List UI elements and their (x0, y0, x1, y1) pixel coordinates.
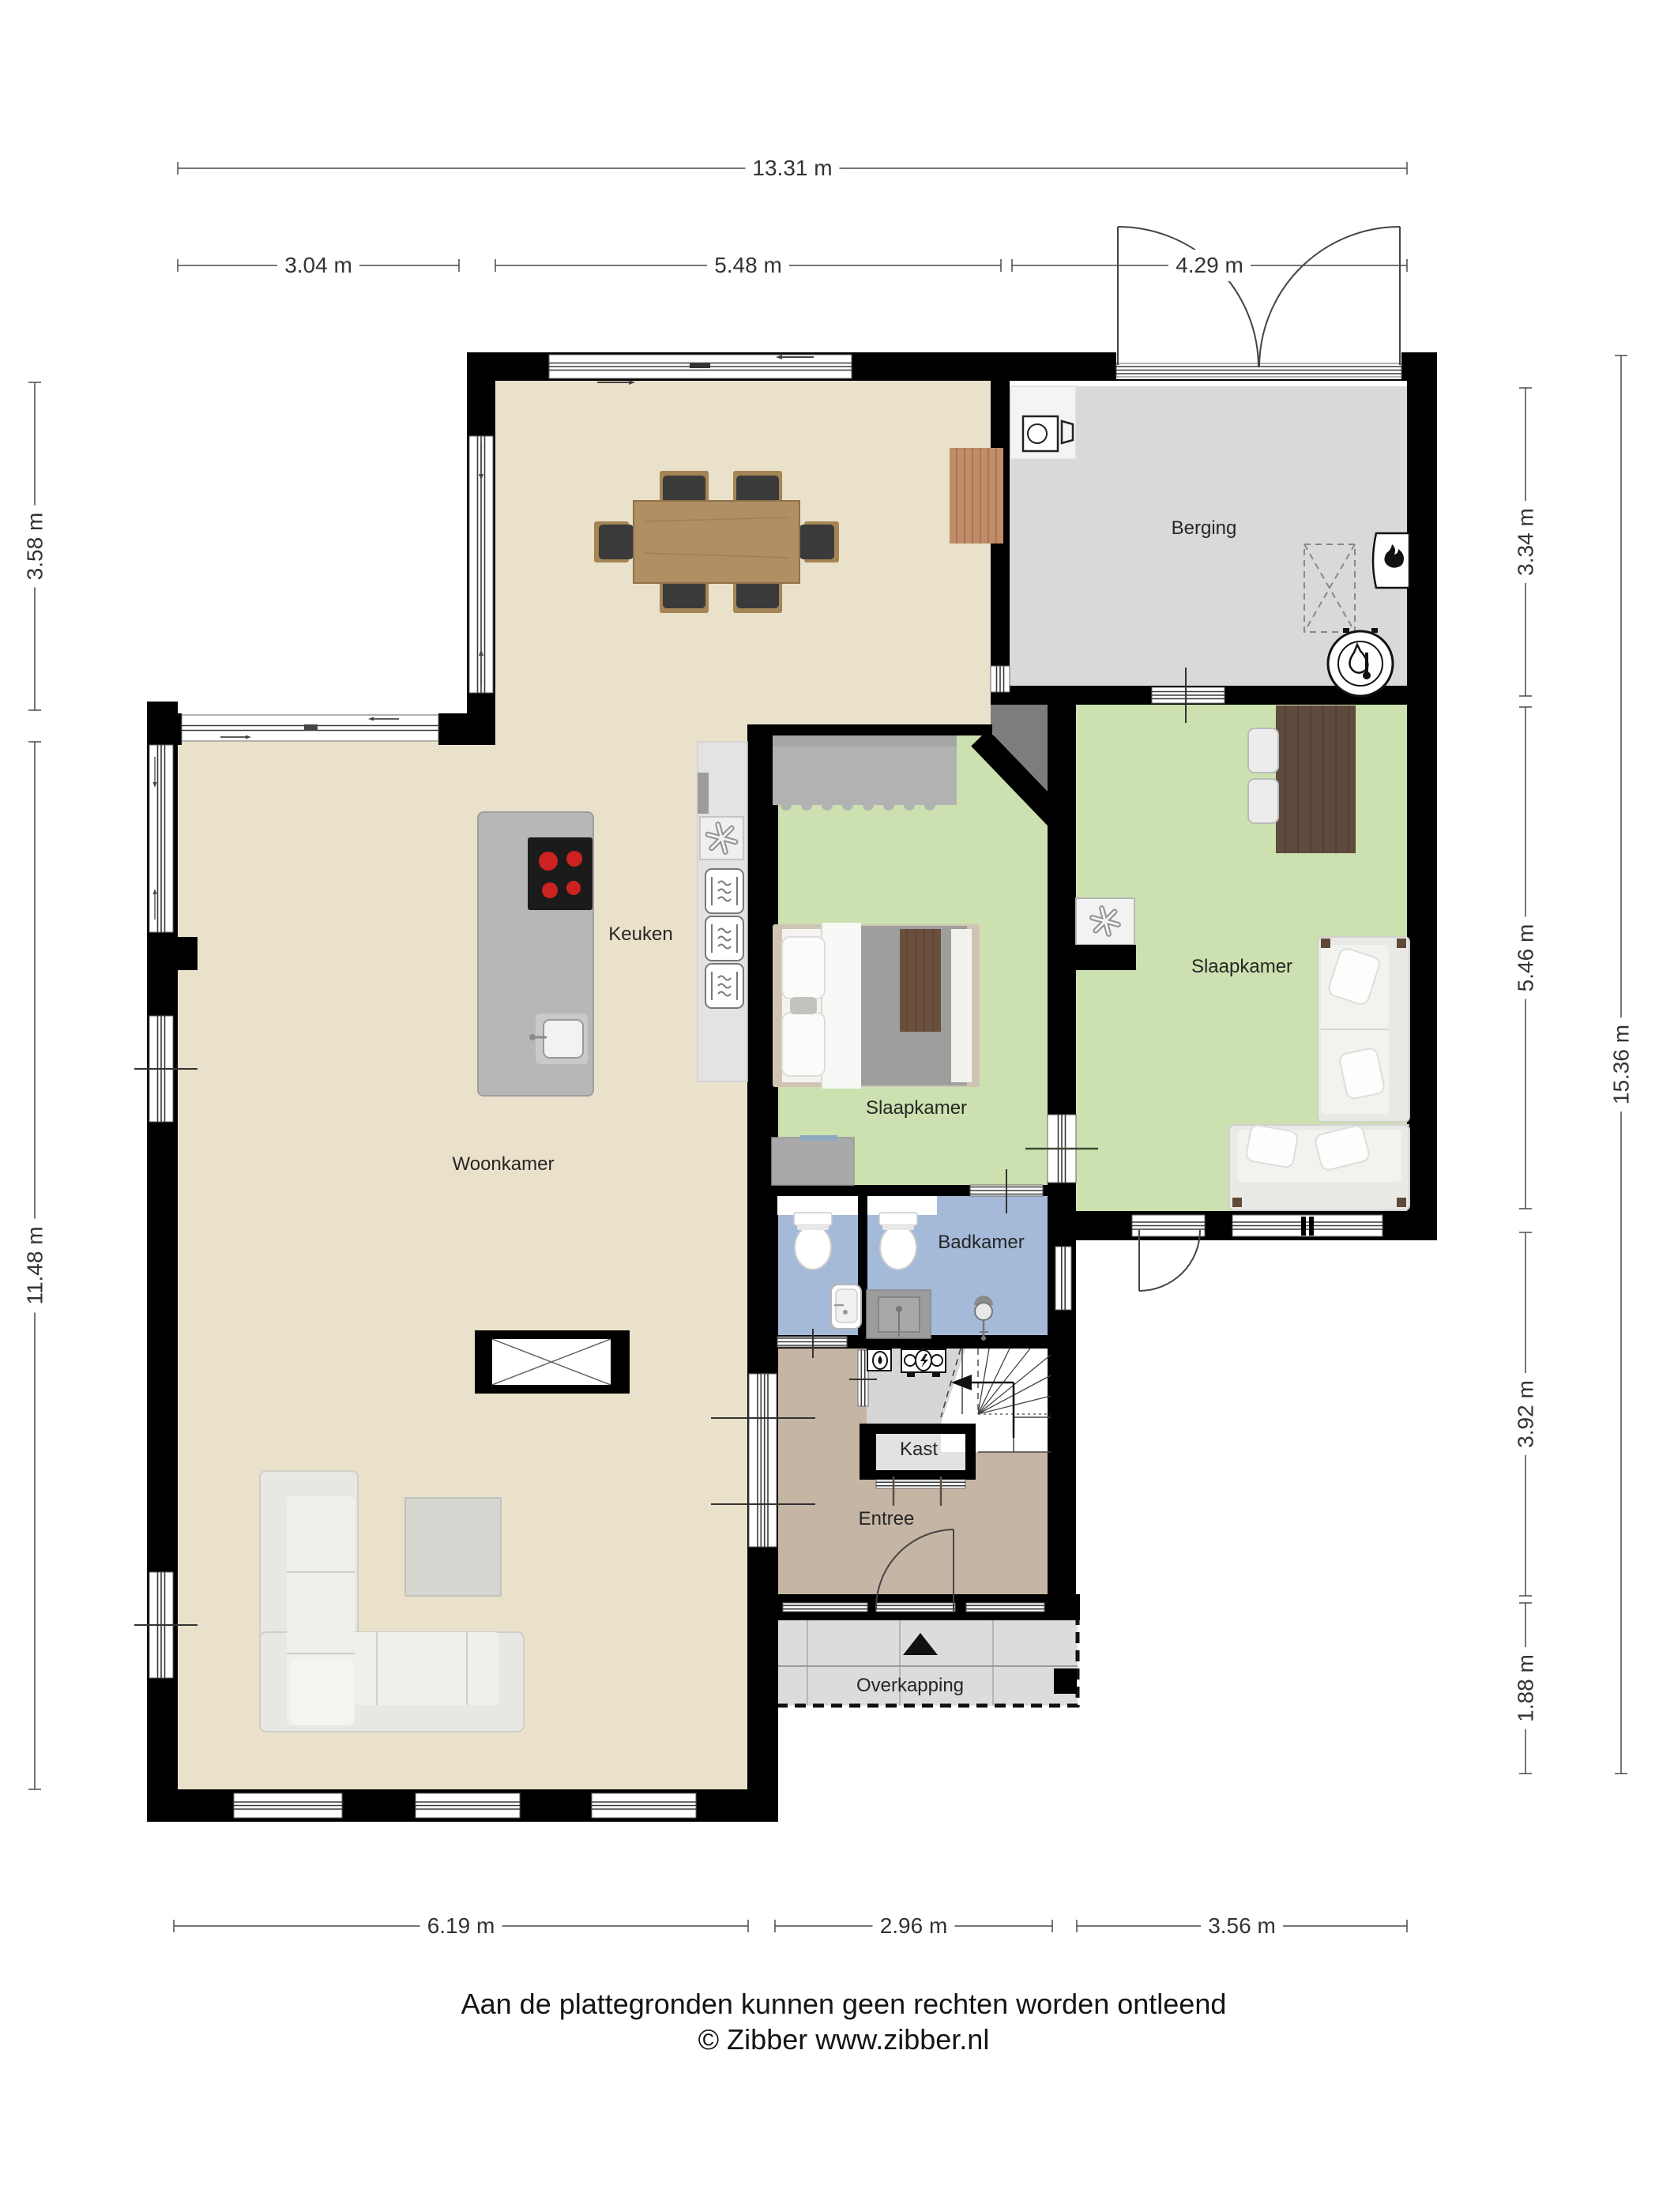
svg-text:15.36 m: 15.36 m (1609, 1025, 1634, 1104)
svg-text:Overkapping: Overkapping (856, 1675, 964, 1696)
svg-text:3.92 m: 3.92 m (1514, 1380, 1538, 1448)
svg-text:3.58 m: 3.58 m (23, 513, 47, 581)
svg-text:© Zibber www.zibber.nl: © Zibber www.zibber.nl (698, 2023, 990, 2056)
svg-text:6.19 m: 6.19 m (427, 1913, 495, 1938)
svg-text:Slaapkamer: Slaapkamer (866, 1097, 967, 1119)
svg-text:11.48 m: 11.48 m (23, 1226, 47, 1304)
svg-text:Slaapkamer: Slaapkamer (1191, 956, 1292, 977)
svg-text:3.04 m: 3.04 m (284, 253, 352, 277)
svg-text:4.29 m: 4.29 m (1176, 253, 1243, 277)
svg-text:13.31 m: 13.31 m (752, 156, 832, 180)
svg-text:3.56 m: 3.56 m (1208, 1913, 1276, 1938)
svg-text:Berging: Berging (1172, 517, 1237, 539)
svg-text:1.88 m: 1.88 m (1514, 1654, 1538, 1722)
svg-text:Entree: Entree (859, 1508, 915, 1529)
svg-text:Kast: Kast (900, 1439, 938, 1460)
svg-text:3.34 m: 3.34 m (1514, 508, 1538, 576)
svg-text:Aan de plattegronden kunnen ge: Aan de plattegronden kunnen geen rechten… (461, 1988, 1227, 2020)
svg-text:Keuken: Keuken (608, 924, 672, 945)
svg-text:Badkamer: Badkamer (938, 1232, 1024, 1253)
svg-text:5.46 m: 5.46 m (1514, 924, 1538, 992)
svg-text:Woonkamer: Woonkamer (453, 1153, 555, 1175)
svg-text:5.48 m: 5.48 m (714, 253, 782, 277)
svg-text:2.96 m: 2.96 m (880, 1913, 948, 1938)
